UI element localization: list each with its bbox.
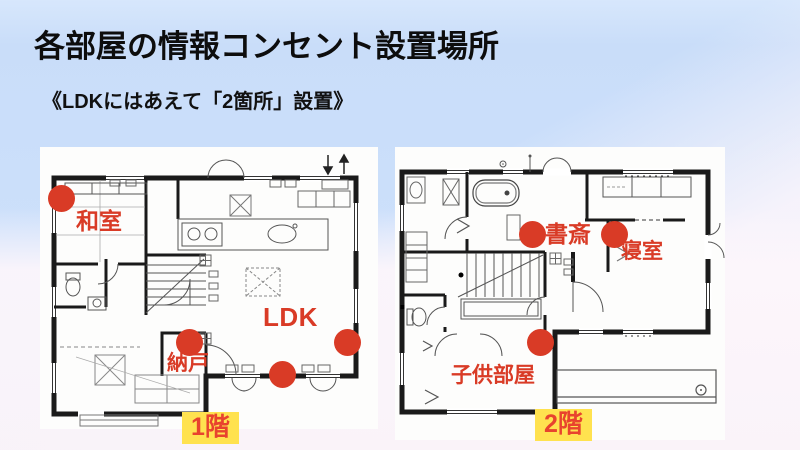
slide-title: 各部屋の情報コンセント設置場所 bbox=[34, 28, 499, 65]
outlet-marker-kodomobeya bbox=[527, 329, 554, 356]
room-label-kodomobeya: 子供部屋 bbox=[451, 365, 535, 386]
room-label-ldk: LDK bbox=[263, 304, 318, 330]
room-label-washitsu: 和室 bbox=[76, 210, 122, 233]
room-label-nando: 納戸 bbox=[167, 353, 209, 374]
outlet-marker-nando bbox=[176, 329, 203, 356]
outlet-marker-washitsu bbox=[48, 185, 75, 212]
floorplan-2f-panel: 書斎 寝室 子供部屋 2階 bbox=[395, 147, 725, 440]
room-label-shosai: 書斎 bbox=[545, 223, 591, 246]
floorplan-2f-drawing bbox=[395, 147, 725, 440]
room-label-shinshitsu: 寝室 bbox=[621, 241, 663, 262]
floorplan-1f-panel: 和室 納戸 LDK 1階 bbox=[40, 147, 378, 429]
outlet-marker-shinshitsu bbox=[601, 221, 628, 248]
floorplan-1f-drawing bbox=[40, 147, 378, 429]
outlet-marker-ldk-south bbox=[269, 361, 296, 388]
outlet-marker-shosai bbox=[519, 221, 546, 248]
slide-subtitle: 《LDKにはあえて「2箇所」設置》 bbox=[42, 90, 353, 114]
outlet-marker-ldk-east bbox=[334, 329, 361, 356]
floor-badge-1f: 1階 bbox=[182, 412, 239, 444]
floor-badge-2f: 2階 bbox=[535, 409, 592, 441]
